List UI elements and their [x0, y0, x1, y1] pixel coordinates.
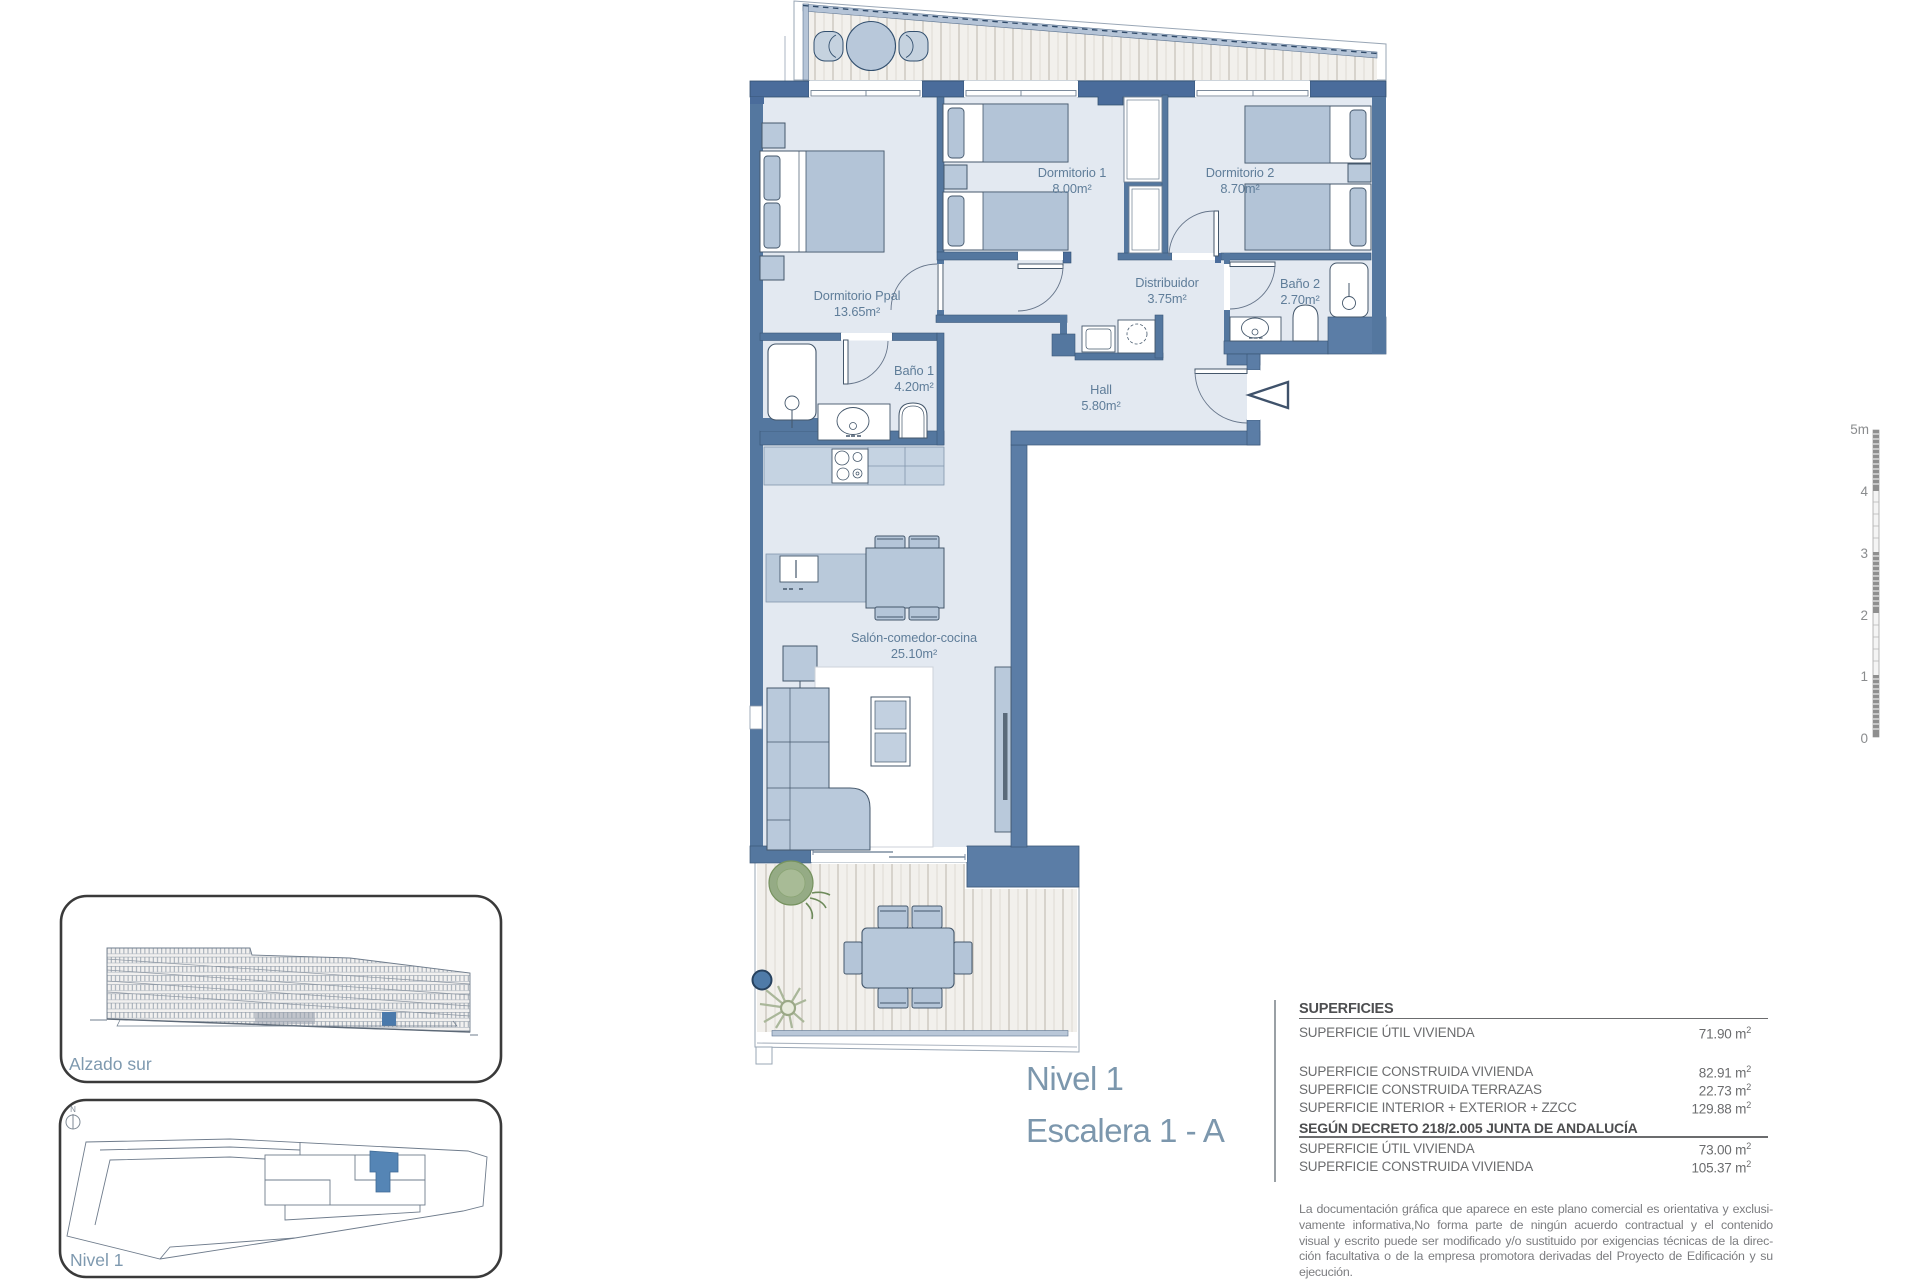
svg-text:1: 1 [1860, 669, 1868, 684]
svg-text:5m: 5m [1850, 422, 1869, 437]
svg-text:3: 3 [1860, 546, 1868, 561]
svg-text:4.20m²: 4.20m² [894, 379, 934, 394]
svg-text:2.70m²: 2.70m² [1280, 292, 1320, 307]
svg-text:Dormitorio 1: Dormitorio 1 [1038, 165, 1107, 180]
svg-text:Dormitorio 2: Dormitorio 2 [1206, 165, 1275, 180]
svg-text:Baño 2: Baño 2 [1280, 276, 1320, 291]
svg-text:25.10m²: 25.10m² [891, 646, 938, 661]
svg-text:Alzado sur: Alzado sur [69, 1054, 152, 1074]
svg-text:Distribuidor: Distribuidor [1135, 275, 1199, 290]
svg-text:Hall: Hall [1090, 382, 1112, 397]
svg-text:Dormitorio Ppal: Dormitorio Ppal [814, 288, 901, 303]
svg-text:2: 2 [1860, 608, 1868, 623]
svg-text:8.70m²: 8.70m² [1220, 181, 1260, 196]
svg-text:0: 0 [1860, 731, 1868, 746]
svg-text:Salón-comedor-cocina: Salón-comedor-cocina [851, 630, 978, 645]
svg-text:N: N [70, 1105, 76, 1114]
svg-text:4: 4 [1860, 484, 1868, 499]
svg-text:Nivel 1: Nivel 1 [1026, 1060, 1123, 1097]
svg-text:3.75m²: 3.75m² [1147, 291, 1187, 306]
svg-text:Escalera 1 - A: Escalera 1 - A [1026, 1112, 1225, 1149]
svg-text:Nivel 1: Nivel 1 [70, 1250, 124, 1270]
svg-text:13.65m²: 13.65m² [834, 304, 881, 319]
svg-text:5.80m²: 5.80m² [1081, 398, 1121, 413]
svg-text:Baño 1: Baño 1 [894, 363, 934, 378]
svg-text:8.00m²: 8.00m² [1052, 181, 1092, 196]
